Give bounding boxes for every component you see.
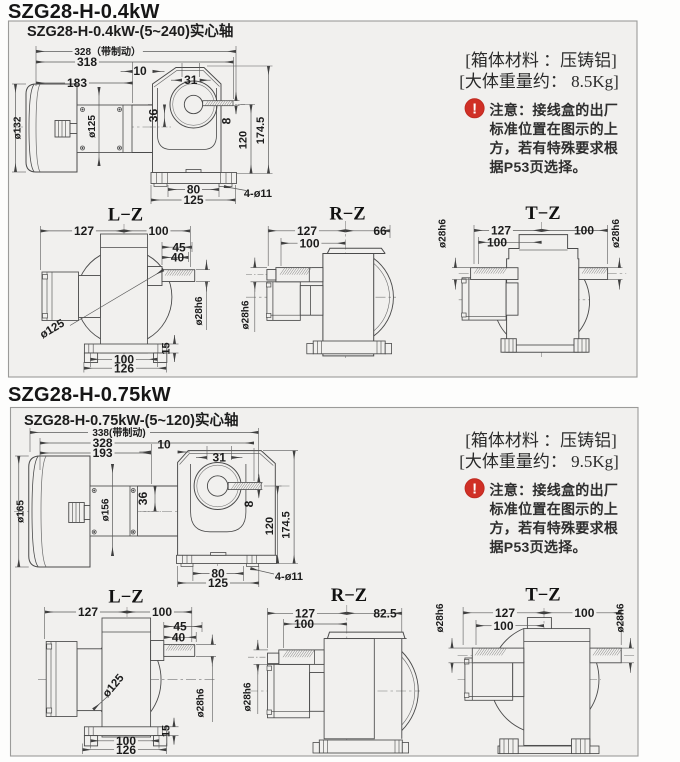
svg-text:ø125: ø125 <box>87 115 98 138</box>
svg-text:8: 8 <box>242 500 256 507</box>
svg-text:[箱体材料 ：压铸铝]: [箱体材料 ：压铸铝] <box>465 51 617 70</box>
svg-text:R−Z: R−Z <box>329 205 365 225</box>
svg-text:100: 100 <box>493 619 513 633</box>
svg-text:120: 120 <box>264 517 276 535</box>
svg-text:4-ø11: 4-ø11 <box>244 188 272 200</box>
svg-text:ø132: ø132 <box>13 116 24 139</box>
svg-text:125: 125 <box>208 576 228 590</box>
svg-text:120: 120 <box>238 131 250 149</box>
svg-text:[大体重量约： 9.5Kg]: [大体重量约： 9.5Kg] <box>459 452 619 471</box>
svg-text:40: 40 <box>171 250 185 264</box>
svg-text:L−Z: L−Z <box>108 588 143 608</box>
svg-text:ø28h6: ø28h6 <box>435 603 446 632</box>
svg-text:318: 318 <box>77 55 97 69</box>
svg-text:100: 100 <box>152 605 172 619</box>
svg-text:ø165: ø165 <box>16 500 27 523</box>
svg-text:126: 126 <box>114 361 134 375</box>
svg-text:标准位置在图示的上: 标准位置在图示的上 <box>489 501 619 517</box>
svg-text:174.5: 174.5 <box>255 117 267 145</box>
svg-text:T−Z: T−Z <box>525 586 560 606</box>
svg-text:127: 127 <box>78 605 98 619</box>
svg-text:4-ø11: 4-ø11 <box>275 571 303 583</box>
svg-text:ø28h6: ø28h6 <box>616 603 627 632</box>
svg-text:100: 100 <box>574 606 594 620</box>
svg-text:100: 100 <box>487 235 507 249</box>
svg-text:82.5: 82.5 <box>373 606 397 620</box>
svg-text:方，若有特殊要求根: 方，若有特殊要求根 <box>490 140 619 156</box>
svg-text:100: 100 <box>294 617 314 631</box>
svg-text:31: 31 <box>184 73 198 87</box>
svg-text:ø28h6: ø28h6 <box>438 219 449 248</box>
svg-text:15: 15 <box>161 725 173 737</box>
svg-text:127: 127 <box>495 606 515 620</box>
svg-text:15: 15 <box>161 342 173 354</box>
svg-text:R−Z: R−Z <box>331 586 367 606</box>
svg-text:[箱体材料 ：压铸铝]: [箱体材料 ：压铸铝] <box>465 431 617 450</box>
svg-text:36: 36 <box>147 109 161 123</box>
svg-text:L−Z: L−Z <box>108 206 143 226</box>
svg-text:10: 10 <box>133 64 147 78</box>
svg-text:ø28h6: ø28h6 <box>611 219 622 248</box>
svg-text:100: 100 <box>148 224 168 238</box>
svg-text:标准位置在图示的上: 标准位置在图示的上 <box>489 121 619 137</box>
svg-text:[大体重量约： 8.5Kg]: [大体重量约： 8.5Kg] <box>459 72 619 91</box>
svg-text:方，若有特殊要求根: 方，若有特殊要求根 <box>490 520 619 536</box>
svg-text:ø156: ø156 <box>101 498 112 521</box>
svg-text:100: 100 <box>574 223 594 237</box>
svg-text:127: 127 <box>74 224 94 238</box>
svg-text:36: 36 <box>136 492 150 506</box>
svg-text:注意：接线盒的出厂: 注意：接线盒的出厂 <box>490 102 619 118</box>
svg-text:8: 8 <box>220 117 234 124</box>
svg-text:ø28h6: ø28h6 <box>243 682 254 711</box>
svg-text:31: 31 <box>213 450 227 464</box>
svg-text:66: 66 <box>373 224 387 238</box>
svg-text:!: ! <box>472 481 477 498</box>
svg-text:193: 193 <box>93 446 113 460</box>
svg-text:183: 183 <box>67 76 87 90</box>
svg-text:10: 10 <box>157 438 171 452</box>
svg-text:SZG28-H-0.75kW-(5~120)实心轴: SZG28-H-0.75kW-(5~120)实心轴 <box>24 411 238 429</box>
svg-text:据P53页选择。: 据P53页选择。 <box>490 539 587 555</box>
svg-text:174.5: 174.5 <box>281 511 293 539</box>
svg-text:据P53页选择。: 据P53页选择。 <box>490 159 587 175</box>
svg-text:125: 125 <box>183 193 203 207</box>
svg-text:注意：接线盒的出厂: 注意：接线盒的出厂 <box>490 482 619 498</box>
svg-text:40: 40 <box>172 630 186 644</box>
svg-text:SZG28-H-0.4kW-(5~240)实心轴: SZG28-H-0.4kW-(5~240)实心轴 <box>27 22 233 40</box>
svg-text:ø28h6: ø28h6 <box>196 688 207 717</box>
svg-text:ø28h6: ø28h6 <box>241 300 252 329</box>
svg-text:100: 100 <box>299 236 319 250</box>
svg-text:126: 126 <box>116 743 136 757</box>
svg-text:ø28h6: ø28h6 <box>194 296 205 325</box>
svg-text:!: ! <box>472 101 477 118</box>
svg-text:T−Z: T−Z <box>525 204 560 224</box>
